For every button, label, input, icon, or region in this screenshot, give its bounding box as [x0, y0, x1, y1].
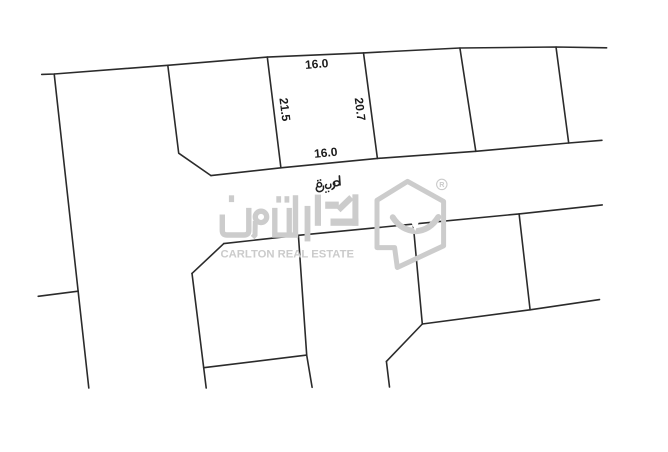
svg-text:21.5: 21.5: [276, 97, 293, 122]
svg-text:20.7: 20.7: [352, 97, 369, 122]
svg-text:R: R: [439, 180, 445, 189]
svg-text:CARLTON REAL ESTATE: CARLTON REAL ESTATE: [221, 249, 355, 261]
svg-text:16.0: 16.0: [304, 56, 329, 72]
svg-text:16.0: 16.0: [313, 145, 338, 161]
